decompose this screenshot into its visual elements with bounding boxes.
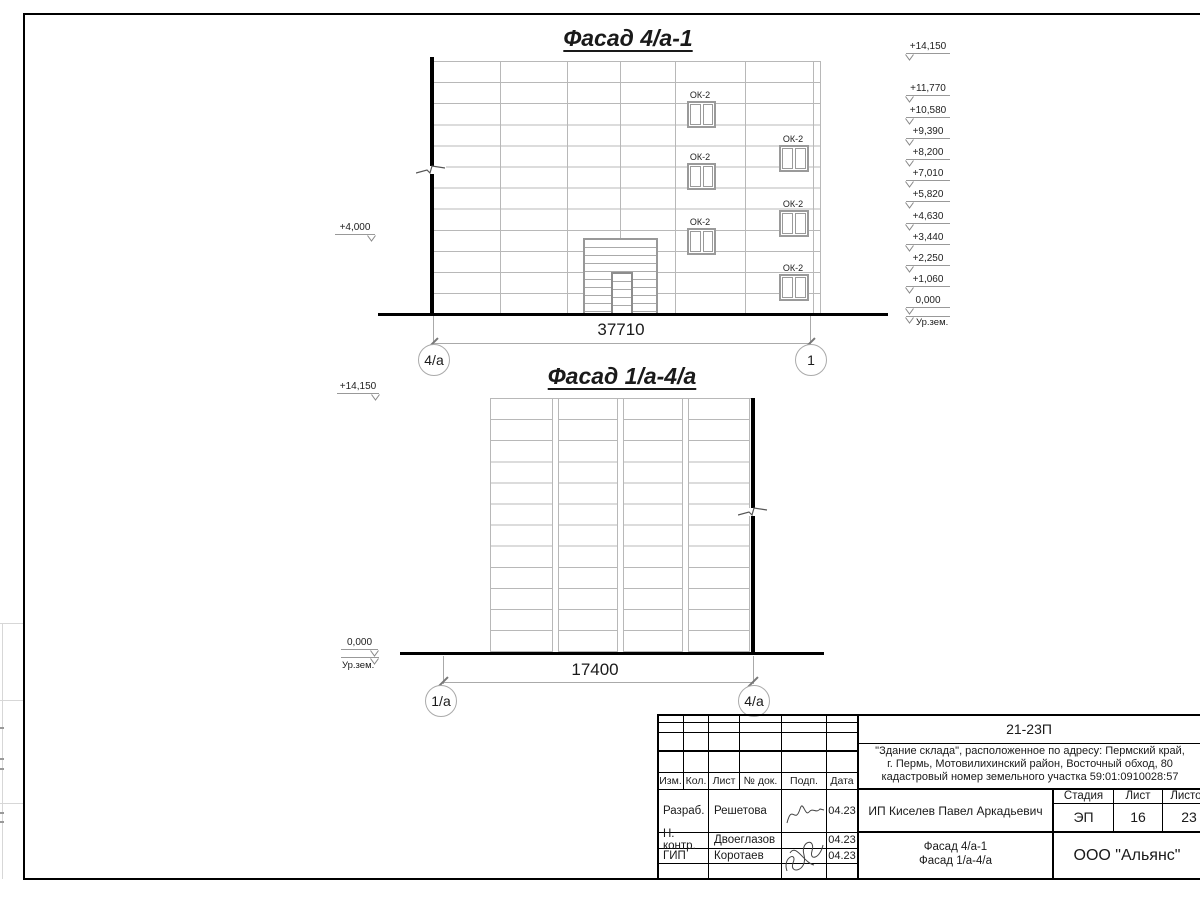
tb-col-ndok: № док. bbox=[740, 772, 781, 789]
facade2-panel bbox=[558, 399, 618, 652]
level-mark: +8,200 bbox=[906, 147, 950, 160]
tb-line bbox=[657, 714, 659, 880]
level-tick-icon bbox=[905, 54, 914, 61]
facade1-corner-line bbox=[430, 57, 434, 315]
window-ok2 bbox=[687, 163, 716, 190]
signature-razrab bbox=[782, 797, 826, 829]
level-mark: +4,630 bbox=[906, 211, 950, 224]
dim-line bbox=[443, 682, 753, 683]
level-mark: +14,150 bbox=[906, 41, 950, 54]
margin-tick bbox=[0, 758, 4, 760]
dim-value: 17400 bbox=[535, 660, 655, 680]
tb-col-list: Лист bbox=[709, 772, 739, 789]
level-tick-icon bbox=[905, 181, 914, 188]
tb-sheets-label: Листов bbox=[1163, 789, 1200, 803]
tb-col-podp: Подп. bbox=[782, 772, 826, 789]
panel-joint bbox=[745, 61, 746, 313]
panel-joint bbox=[500, 61, 501, 313]
frame-bottom bbox=[23, 878, 1200, 880]
panel-joint bbox=[675, 61, 676, 313]
level-tick-icon bbox=[905, 287, 914, 294]
tb-col-izm: Изм. bbox=[658, 772, 683, 789]
dim-value: 37710 bbox=[561, 320, 681, 340]
window-ok2 bbox=[779, 274, 809, 301]
margin-tick bbox=[0, 812, 4, 814]
tb-role: Н. контр. bbox=[660, 832, 708, 848]
level-tick-icon bbox=[370, 650, 379, 657]
axis-bubble: 4/а bbox=[738, 685, 770, 717]
frame-left bbox=[23, 13, 25, 880]
level-tick-icon bbox=[905, 202, 914, 209]
ground-level-label: Ур.зем. bbox=[342, 660, 374, 671]
tb-stage-value: ЭП bbox=[1054, 803, 1113, 831]
margin-line bbox=[2, 623, 3, 879]
level-tick-icon bbox=[905, 160, 914, 167]
level-tick-icon bbox=[905, 266, 914, 273]
dim-line bbox=[433, 343, 811, 344]
tb-stage-label: Стадия bbox=[1054, 789, 1113, 803]
level-tick-icon bbox=[905, 118, 914, 125]
tb-line bbox=[657, 863, 858, 864]
tb-client: ИП Киселев Павел Аркадьевич bbox=[859, 790, 1052, 831]
tb-company: ООО "Альянс" bbox=[1054, 832, 1200, 880]
margin-tick bbox=[0, 727, 4, 729]
level-tick-icon bbox=[905, 224, 914, 231]
tb-line bbox=[657, 722, 858, 723]
level-mark: +2,250 bbox=[906, 253, 950, 266]
window-label: ОК-2 bbox=[682, 90, 718, 100]
tb-sheet-value: 16 bbox=[1114, 803, 1162, 831]
margin-line bbox=[0, 700, 23, 701]
tb-name: Двоеглазов bbox=[711, 832, 781, 848]
window-label: ОК-2 bbox=[682, 152, 718, 162]
level-mark: +10,580 bbox=[906, 105, 950, 118]
level-mark: +5,820 bbox=[906, 189, 950, 202]
level-mark: +3,440 bbox=[906, 232, 950, 245]
tb-line bbox=[657, 750, 858, 752]
window-ok2 bbox=[687, 101, 716, 128]
margin-tick bbox=[0, 768, 4, 770]
wicket-door bbox=[611, 272, 633, 315]
facade2-panel bbox=[688, 399, 750, 652]
tb-date: 04.23 bbox=[827, 832, 857, 848]
tb-project-line: кадастровый номер земельного участка 59:… bbox=[860, 770, 1200, 783]
tb-date: 04.23 bbox=[827, 848, 857, 863]
window-label: ОК-2 bbox=[775, 199, 811, 209]
tb-date: 04.23 bbox=[827, 789, 857, 832]
level-mark: 0,000 bbox=[906, 295, 950, 308]
facade2-corner-line bbox=[751, 398, 755, 655]
level-mark: +9,390 bbox=[906, 126, 950, 139]
window-label: ОК-2 bbox=[775, 263, 811, 273]
margin-tick bbox=[0, 821, 4, 823]
level-mark: +4,000 bbox=[335, 222, 375, 235]
break-symbol bbox=[738, 505, 768, 519]
level-mark: +7,010 bbox=[906, 168, 950, 181]
tb-role: ГИП bbox=[660, 848, 708, 863]
tb-project-line: "Здание склада", расположенное по адресу… bbox=[860, 744, 1200, 757]
level-mark: +11,770 bbox=[906, 83, 950, 96]
window-label: ОК-2 bbox=[775, 134, 811, 144]
tb-line bbox=[657, 732, 858, 733]
panel-joint bbox=[813, 61, 814, 313]
tb-col-kol: Кол. bbox=[684, 772, 708, 789]
window-ok2 bbox=[779, 145, 809, 172]
facade2-title: Фасад 1/а-4/а bbox=[512, 363, 732, 390]
tb-sheet-label: Лист bbox=[1114, 789, 1162, 803]
facade1-title: Фасад 4/а-1 bbox=[518, 25, 738, 52]
tb-drawing-name-line: Фасад 4/а-1 bbox=[859, 833, 1052, 853]
drawing-sheet: Фасад 4/а-1 ОК-2 ОК-2 ОК-2 ОК-2 ОК-2 ОК-… bbox=[0, 0, 1200, 900]
tb-col-data: Дата bbox=[827, 772, 857, 789]
window-label: ОК-2 bbox=[682, 217, 718, 227]
window-ok2 bbox=[687, 228, 716, 255]
tb-sheets-value: 23 bbox=[1163, 803, 1200, 831]
facade2-panel bbox=[490, 399, 553, 652]
margin-line bbox=[0, 623, 23, 624]
level-mark: +1,060 bbox=[906, 274, 950, 287]
ground-line bbox=[378, 313, 888, 316]
tb-drawing-name-line: Фасад 1/а-4/а bbox=[859, 854, 1052, 868]
axis-bubble: 4/а bbox=[418, 344, 450, 376]
ground-line bbox=[400, 652, 824, 655]
tb-project-line: г. Пермь, Мотовилихинский район, Восточн… bbox=[860, 757, 1200, 770]
level-mark: +14,150 bbox=[337, 381, 379, 394]
facade2-panel bbox=[623, 399, 683, 652]
tb-name: Коротаев bbox=[711, 848, 781, 863]
tb-doc-number: 21-23П bbox=[858, 714, 1200, 743]
window-ok2 bbox=[779, 210, 809, 237]
signature-nkontr-gip bbox=[780, 833, 826, 877]
level-tick-icon bbox=[905, 317, 914, 324]
level-tick-icon bbox=[371, 394, 380, 401]
level-tick-icon bbox=[905, 308, 914, 315]
axis-bubble: 1 bbox=[795, 344, 827, 376]
axis-bubble: 1/а bbox=[425, 685, 457, 717]
tb-line bbox=[708, 714, 709, 880]
break-symbol bbox=[416, 163, 446, 177]
frame-top bbox=[23, 13, 1200, 15]
level-tick-icon bbox=[905, 139, 914, 146]
tb-name: Решетова bbox=[711, 789, 781, 832]
level-tick-icon bbox=[367, 235, 376, 242]
tb-role: Разраб. bbox=[660, 789, 708, 832]
ground-level-label: Ур.зем. bbox=[916, 317, 948, 328]
level-mark: 0,000 bbox=[341, 637, 378, 650]
panel-joint bbox=[567, 61, 568, 313]
level-tick-icon bbox=[905, 245, 914, 252]
margin-line bbox=[0, 803, 23, 804]
level-tick-icon bbox=[905, 96, 914, 103]
